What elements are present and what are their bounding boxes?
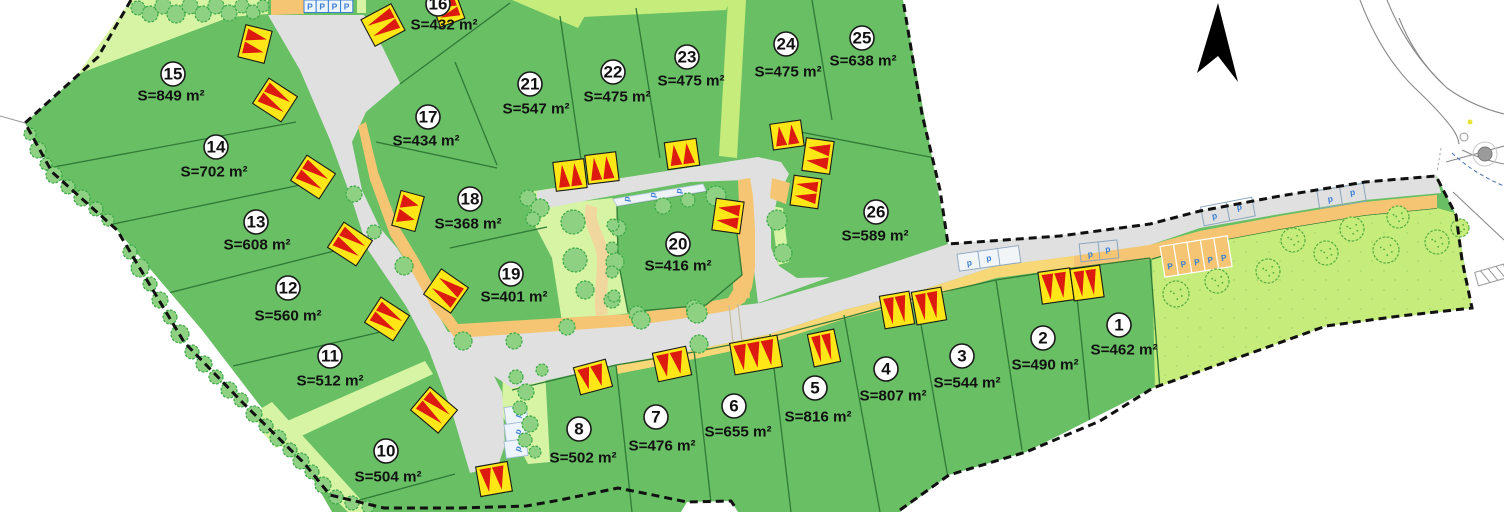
svg-text:p: p bbox=[1105, 244, 1111, 254]
svg-text:P: P bbox=[319, 2, 325, 12]
svg-text:p: p bbox=[1087, 249, 1093, 259]
svg-text:S=432 m²: S=432 m² bbox=[410, 17, 477, 34]
svg-text:S=434 m²: S=434 m² bbox=[392, 133, 459, 150]
svg-text:S=544 m²: S=544 m² bbox=[933, 375, 1000, 392]
svg-text:3: 3 bbox=[957, 347, 966, 366]
svg-text:17: 17 bbox=[419, 108, 438, 127]
svg-text:21: 21 bbox=[521, 75, 540, 94]
svg-text:13: 13 bbox=[247, 213, 266, 232]
svg-text:S=849 m²: S=849 m² bbox=[137, 88, 204, 105]
svg-text:S=547 m²: S=547 m² bbox=[502, 101, 569, 118]
svg-text:P: P bbox=[332, 2, 338, 12]
svg-text:S=589 m²: S=589 m² bbox=[841, 228, 908, 245]
svg-text:18: 18 bbox=[461, 190, 480, 209]
svg-text:12: 12 bbox=[279, 279, 298, 298]
svg-text:22: 22 bbox=[604, 63, 623, 82]
svg-text:26: 26 bbox=[867, 203, 886, 222]
svg-text:1: 1 bbox=[1114, 316, 1123, 335]
svg-text:S=512 m²: S=512 m² bbox=[296, 373, 363, 390]
svg-text:S=475 m²: S=475 m² bbox=[754, 64, 821, 81]
svg-text:S=816 m²: S=816 m² bbox=[784, 409, 851, 426]
svg-text:P: P bbox=[307, 2, 313, 12]
svg-text:S=807 m²: S=807 m² bbox=[859, 388, 926, 405]
svg-text:P: P bbox=[344, 2, 350, 12]
svg-text:14: 14 bbox=[207, 138, 226, 157]
svg-text:S=475 m²: S=475 m² bbox=[657, 73, 724, 90]
svg-text:S=490 m²: S=490 m² bbox=[1011, 357, 1078, 374]
svg-text:10: 10 bbox=[377, 442, 396, 461]
svg-text:8: 8 bbox=[574, 420, 583, 439]
svg-text:11: 11 bbox=[321, 347, 339, 366]
svg-text:S=504 m²: S=504 m² bbox=[354, 469, 421, 486]
svg-text:5: 5 bbox=[810, 379, 819, 398]
svg-text:S=560 m²: S=560 m² bbox=[254, 308, 321, 325]
svg-text:24: 24 bbox=[777, 35, 796, 54]
svg-text:S=702 m²: S=702 m² bbox=[180, 164, 247, 181]
svg-text:S=502 m²: S=502 m² bbox=[549, 450, 616, 467]
svg-text:S=401 m²: S=401 m² bbox=[480, 289, 547, 306]
svg-text:16: 16 bbox=[429, 0, 448, 14]
svg-text:S=655 m²: S=655 m² bbox=[704, 424, 771, 441]
svg-text:S=638 m²: S=638 m² bbox=[829, 53, 896, 70]
svg-text:S=476 m²: S=476 m² bbox=[628, 438, 695, 455]
svg-text:7: 7 bbox=[651, 408, 660, 427]
svg-text:15: 15 bbox=[164, 65, 183, 84]
svg-text:19: 19 bbox=[502, 265, 521, 284]
svg-text:S=462 m²: S=462 m² bbox=[1090, 342, 1157, 359]
svg-text:S=368 m²: S=368 m² bbox=[434, 216, 501, 233]
svg-text:20: 20 bbox=[669, 235, 688, 254]
svg-text:S=608 m²: S=608 m² bbox=[223, 237, 290, 254]
svg-text:6: 6 bbox=[729, 397, 738, 416]
svg-text:4: 4 bbox=[881, 360, 891, 379]
svg-text:S=416 m²: S=416 m² bbox=[644, 258, 711, 275]
svg-text:2: 2 bbox=[1038, 329, 1047, 348]
svg-text:25: 25 bbox=[853, 29, 872, 48]
svg-text:23: 23 bbox=[678, 48, 697, 67]
svg-text:S=475 m²: S=475 m² bbox=[583, 89, 650, 106]
